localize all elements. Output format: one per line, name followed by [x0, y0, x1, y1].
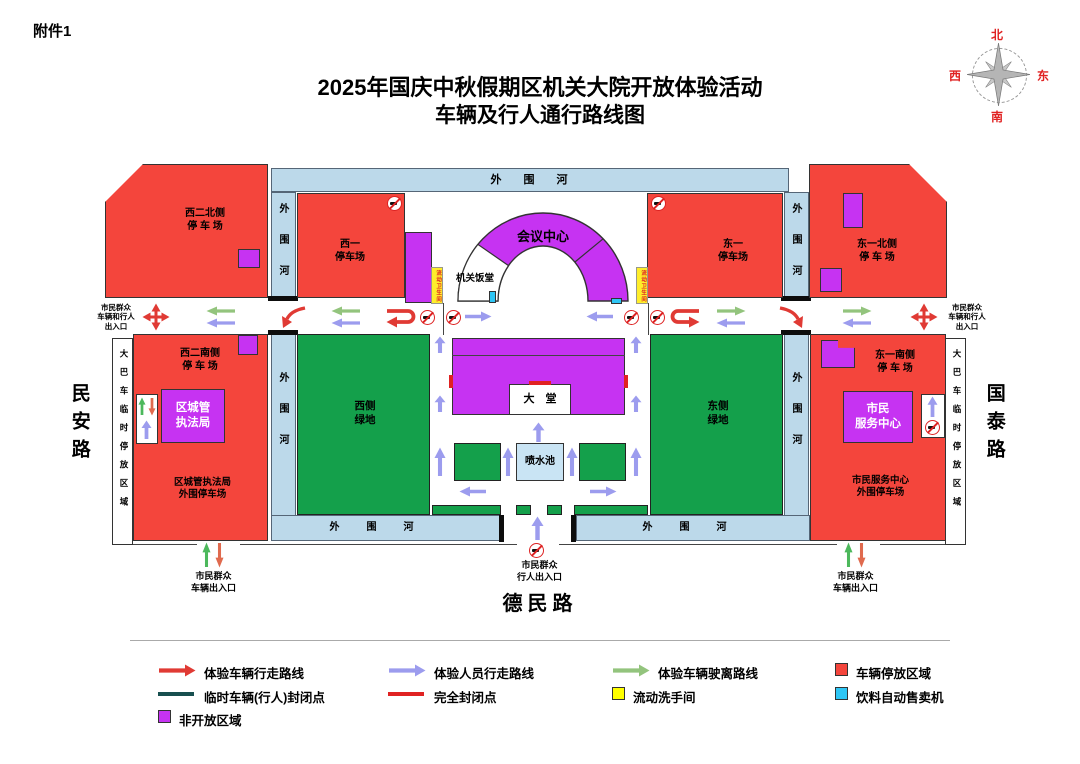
personnel-up-arrow-icon — [630, 447, 642, 477]
personnel-route-arrow-icon — [842, 318, 872, 328]
personnel-route-arrow-icon — [586, 311, 614, 322]
legend-vending-swatch — [835, 687, 848, 700]
legend-label: 完全封闭点 — [434, 687, 497, 706]
no-entry-icon — [624, 310, 639, 325]
canteen-label: 机关饭堂 — [448, 273, 502, 285]
vending-machine — [611, 298, 622, 304]
full-closure-mark — [449, 375, 453, 388]
no-entry-icon — [529, 543, 544, 558]
personnel-up-arrow-icon — [434, 447, 446, 477]
no-entry-icon — [420, 310, 435, 325]
personnel-up-arrow-icon — [630, 395, 642, 413]
route-arrow-pair — [331, 306, 361, 328]
compass-south: 南 — [991, 110, 1003, 126]
legend-depart-route-arrow-icon — [612, 664, 650, 677]
parking-west1-label: 西一停车场 — [305, 238, 395, 264]
page-title: 2025年国庆中秋假期区机关大院开放体验活动 — [150, 74, 930, 103]
compass-rose-icon — [964, 40, 1033, 109]
legend-label: 体验车辆驶离路线 — [658, 663, 758, 682]
compass-east: 东 — [1037, 69, 1049, 85]
non-open-strip — [405, 232, 432, 303]
legend-temp-closure-swatch — [158, 692, 194, 696]
personnel-route-arrow-icon — [716, 318, 746, 328]
legend-label: 临时车辆(行人)封闭点 — [204, 687, 325, 706]
green-strip — [516, 505, 531, 515]
parking-west2-south-label: 西二南侧停 车 场 — [150, 347, 250, 373]
personnel-up-arrow-icon — [531, 516, 544, 541]
building-division-line — [452, 355, 625, 356]
river-east-lower-label: 外围河 — [789, 372, 802, 465]
personnel-up-arrow-icon — [927, 396, 938, 418]
river-west-lower-label: 外围河 — [276, 372, 289, 465]
river-east-upper-label: 外围河 — [789, 203, 802, 296]
parking-east1-south-label: 东一南侧停 车 场 — [845, 349, 945, 375]
personnel-route-arrow-icon — [331, 318, 361, 328]
mobile-toilet-strip: 流动卫生间 — [431, 267, 443, 304]
no-entry-icon — [650, 310, 665, 325]
parking-west2-north-label: 西二北侧停 车 场 — [150, 207, 260, 233]
route-arrow-pair — [206, 306, 236, 328]
enter-up-arrow-icon — [844, 542, 853, 568]
parking-east1-north-label: 东一北侧停 车 场 — [822, 238, 932, 264]
non-open-block — [238, 249, 260, 268]
civic-center-label: 市民服务中心 — [843, 402, 913, 432]
vending-machine — [489, 291, 496, 303]
personnel-up-arrow-icon — [141, 420, 152, 440]
legend-vehicle-route-arrow-icon — [158, 664, 196, 677]
enter-up-arrow-icon — [138, 397, 146, 416]
temp-closure-bar — [781, 330, 811, 335]
south-east-entrance-label: 市民群众车辆出入口 — [808, 571, 903, 594]
temp-closure-bar — [268, 330, 298, 335]
two-way-cross-arrow-icon — [910, 303, 938, 331]
boundary-line — [240, 544, 517, 545]
enter-up-arrow-icon — [202, 542, 211, 568]
legend-label: 体验车辆行走路线 — [204, 663, 304, 682]
no-entry-icon — [387, 196, 402, 211]
legend-label: 饮料自动售卖机 — [856, 687, 944, 706]
depart-route-arrow-icon — [331, 306, 361, 316]
road-guotai: 国泰路 — [981, 383, 1006, 467]
south-center-entrance-label: 市民群众行人出入口 — [497, 560, 582, 583]
river-south-east-label: 外围河 — [638, 521, 758, 534]
personnel-up-arrow-icon — [434, 395, 446, 413]
page-subtitle: 车辆及行人通行路线图 — [150, 102, 930, 129]
personnel-left-arrow-icon — [459, 486, 487, 497]
road-demin: 德民路 — [480, 591, 600, 617]
personnel-up-arrow-icon — [630, 336, 642, 354]
lobby-label: 大 堂 — [509, 392, 571, 406]
temp-closure-bar — [781, 296, 811, 301]
road-minan: 民安路 — [66, 383, 91, 467]
no-entry-icon — [446, 310, 461, 325]
non-open-block — [820, 268, 842, 292]
mobile-toilet-strip: 流动卫生间 — [636, 267, 648, 304]
route-arrow-pair — [716, 306, 746, 328]
south-west-entrance-label: 市民群众车辆出入口 — [166, 571, 261, 594]
river-top-label: 外围河 — [455, 173, 625, 187]
boundary-line — [559, 544, 837, 545]
west-green-label: 西侧绿地 — [330, 400, 400, 427]
green-plot — [579, 443, 626, 481]
depart-route-arrow-icon — [716, 306, 746, 316]
east-green-label: 东侧绿地 — [683, 400, 753, 427]
legend-divider — [130, 640, 950, 641]
green-strip — [432, 505, 501, 515]
no-entry-icon — [651, 196, 666, 211]
compass-west: 西 — [949, 69, 961, 85]
legend-toilet-swatch — [612, 687, 625, 700]
parking-civic-outer-label: 市民服务中心外围停车场 — [828, 475, 933, 500]
temp-closure-bar — [499, 515, 504, 542]
parking-east1-label: 东一停车场 — [688, 238, 778, 264]
west-entrance-label: 市民群众车辆和行人出入口 — [90, 303, 142, 331]
east-entrance-label: 市民群众车辆和行人出入口 — [941, 303, 993, 331]
fountain-label: 喷水池 — [516, 455, 564, 468]
legend-full-closure-swatch — [388, 692, 424, 696]
uturn-arrow-icon — [668, 306, 702, 328]
two-way-cross-arrow-icon — [142, 303, 170, 331]
river-west-upper-label: 外围河 — [276, 203, 289, 296]
exit-down-arrow-icon — [148, 397, 156, 416]
green-strip — [547, 505, 562, 515]
personnel-up-arrow-icon — [532, 422, 545, 443]
depart-route-arrow-icon — [842, 306, 872, 316]
bus-parking-strip-west: 大巴车临时停放区域 — [112, 338, 133, 545]
depart-route-arrow-icon — [206, 306, 236, 316]
legend-label: 车辆停放区域 — [856, 663, 931, 682]
boundary-line — [443, 303, 444, 335]
conference-center-label: 会议中心 — [498, 229, 588, 246]
law-bureau-label: 区城管执法局 — [161, 401, 225, 431]
full-closure-mark — [624, 375, 628, 388]
river-south-west-label: 外围河 — [325, 521, 445, 534]
green-strip — [574, 505, 648, 515]
full-closure-mark — [529, 381, 551, 385]
route-arrow-pair — [842, 306, 872, 328]
compass-north: 北 — [991, 28, 1003, 44]
boundary-line — [648, 303, 649, 335]
personnel-up-arrow-icon — [566, 447, 578, 477]
personnel-route-arrow-icon — [464, 311, 492, 322]
temp-closure-bar — [571, 515, 576, 542]
vehicle-turn-arrow-icon — [281, 305, 307, 329]
temp-closure-bar — [268, 296, 298, 301]
uturn-arrow-icon — [384, 306, 418, 328]
personnel-route-arrow-icon — [206, 318, 236, 328]
legend-non-open-swatch — [158, 710, 171, 723]
personnel-right-arrow-icon — [589, 486, 617, 497]
conference-center-arc — [453, 208, 633, 303]
legend-parking-swatch — [835, 663, 848, 676]
legend-label: 体验人员行走路线 — [434, 663, 534, 682]
route-map-page: 附件1 2025年国庆中秋假期区机关大院开放体验活动 车辆及行人通行路线图 北 … — [0, 0, 1080, 764]
attachment-label: 附件1 — [33, 22, 71, 42]
personnel-up-arrow-icon — [502, 447, 514, 477]
legend-label: 非开放区域 — [179, 710, 242, 729]
personnel-up-arrow-icon — [434, 336, 446, 354]
bus-parking-strip-east: 大巴车临时停放区域 — [945, 338, 966, 545]
parking-law-outer-label: 区城管执法局外围停车场 — [150, 477, 255, 502]
legend-label: 流动洗手间 — [633, 687, 696, 706]
legend-personnel-route-arrow-icon — [388, 664, 426, 677]
non-open-block — [843, 193, 863, 228]
vehicle-turn-arrow-icon — [778, 305, 804, 329]
no-entry-icon — [925, 420, 940, 435]
exit-down-arrow-icon — [215, 542, 224, 568]
exit-down-arrow-icon — [857, 542, 866, 568]
green-plot — [454, 443, 501, 481]
